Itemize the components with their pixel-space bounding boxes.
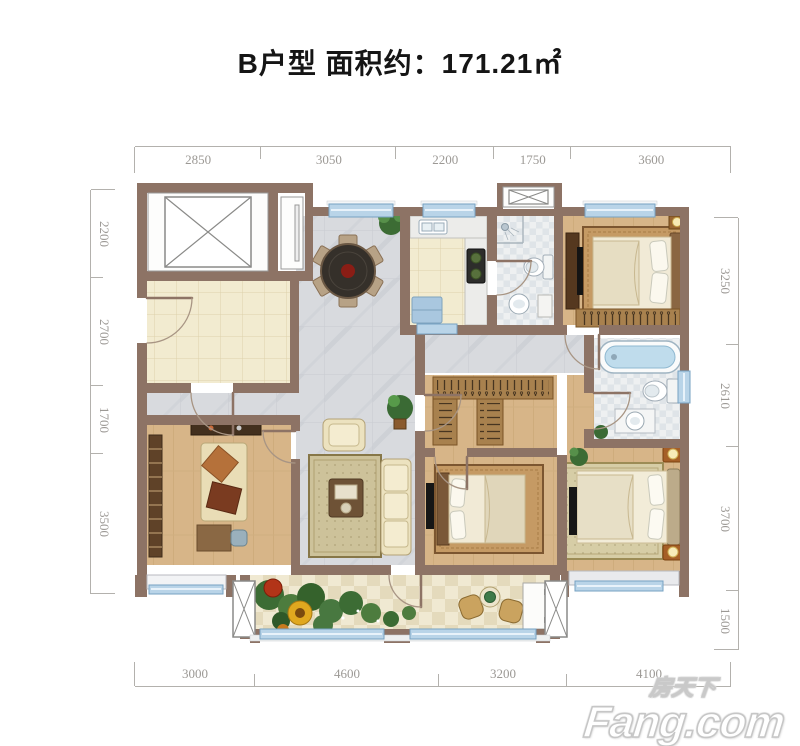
floorplan-page: B户型 面积约：171.21㎡ 2850 3050 2200 1750 3600…	[0, 0, 800, 746]
window-icon	[327, 201, 395, 217]
column-icon	[233, 581, 255, 637]
column-icon	[545, 581, 567, 637]
dimension-label: 3200	[439, 662, 567, 686]
dimensions-left: 2200 2700 1700 3500	[90, 190, 117, 594]
window-icon	[421, 201, 477, 217]
page-title: B户型 面积约：171.21㎡	[0, 42, 800, 82]
window-icon	[410, 629, 536, 639]
window-icon	[575, 581, 663, 591]
corridor-floor	[147, 393, 296, 415]
dimension-label: 1700	[91, 386, 117, 454]
lamp	[668, 449, 678, 459]
window-icon	[583, 201, 657, 217]
tv	[426, 483, 434, 529]
blanket	[485, 475, 525, 543]
dimension-label: 3600	[571, 147, 731, 173]
bath-cabinet	[538, 295, 552, 317]
pipe-shaft-icon	[281, 197, 303, 269]
desk-chair	[231, 530, 247, 546]
hall-floor	[410, 335, 584, 373]
headboard	[437, 473, 449, 545]
dimensions-top: 2850 3050 2200 1750 3600	[135, 146, 731, 173]
dimension-label: 4600	[255, 662, 439, 686]
dimension-label: 2200	[91, 190, 117, 278]
bookshelf	[149, 435, 162, 557]
window-icon	[678, 371, 690, 403]
desk	[197, 525, 231, 551]
dimension-label: 2850	[135, 147, 261, 173]
dimension-label: 3000	[135, 662, 255, 686]
dimension-label: 4100	[567, 662, 731, 686]
elevator-shaft-icon	[148, 193, 268, 271]
dimensions-bottom: 3000 4600 3200 4100	[135, 662, 731, 687]
dimension-label: 1750	[494, 147, 572, 173]
dining-table-set	[312, 235, 383, 307]
shower-head	[502, 224, 509, 231]
window-icon	[260, 629, 384, 639]
floor-plan-image	[133, 183, 733, 663]
pillow	[647, 508, 664, 539]
fang-watermark: 房天下 Fang.com	[584, 686, 798, 746]
tv	[569, 487, 577, 535]
pillow	[450, 510, 466, 539]
headboard	[667, 469, 680, 545]
watermark-logo: Fang.com	[581, 698, 786, 746]
flower	[264, 579, 282, 597]
pillow	[649, 240, 668, 272]
vent-shaft-icon	[503, 187, 554, 207]
blanket	[577, 475, 633, 539]
dimension-label: 3500	[91, 454, 117, 594]
bedroom1-set	[566, 216, 685, 330]
toilet	[667, 379, 679, 403]
dimension-label: 2700	[91, 278, 117, 386]
foyer-floor	[147, 281, 290, 383]
lamp	[668, 547, 678, 557]
window-icon	[417, 324, 457, 334]
dimension-label: 3050	[261, 147, 396, 173]
pillow	[649, 272, 668, 304]
pillow	[450, 478, 466, 507]
dimension-label: 2200	[396, 147, 493, 173]
pillow	[647, 474, 664, 505]
blanket	[593, 241, 639, 305]
tv	[577, 247, 583, 295]
window-icon	[149, 585, 223, 594]
